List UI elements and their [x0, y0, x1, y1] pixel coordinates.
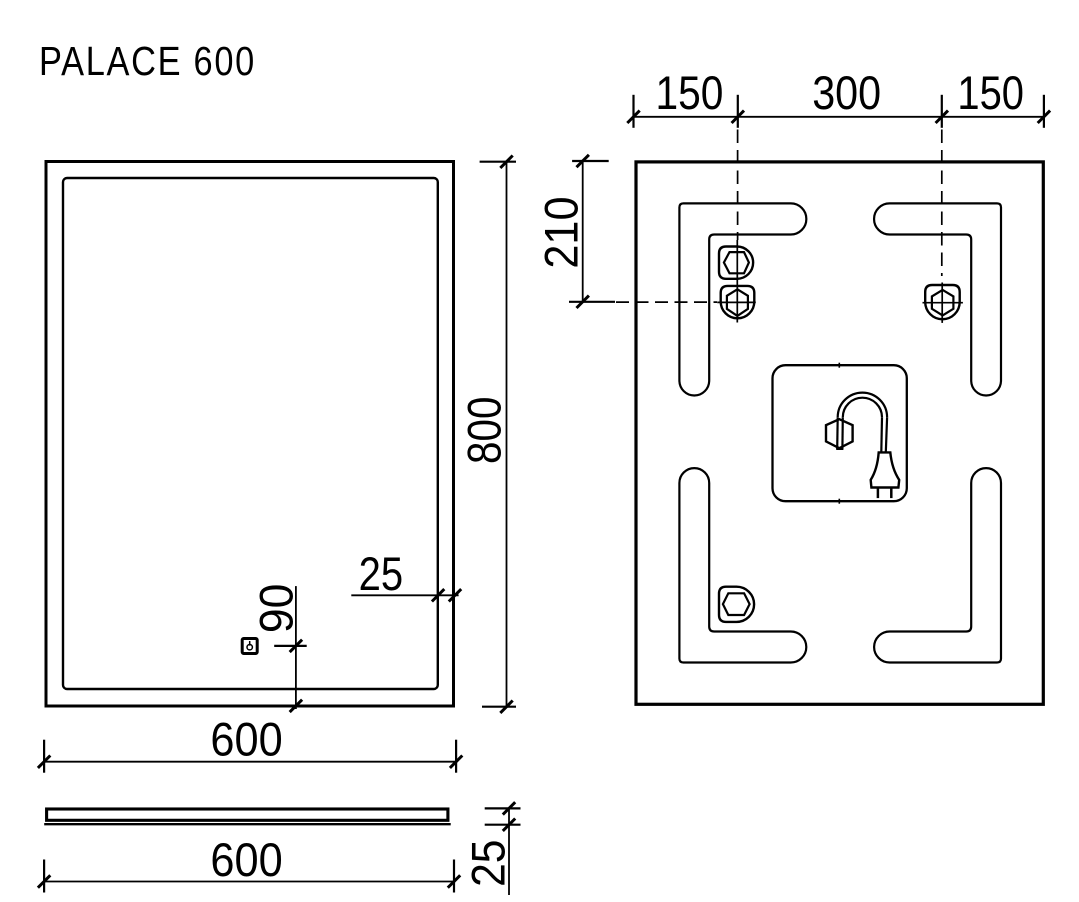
svg-text:150: 150: [656, 66, 724, 119]
svg-text:800: 800: [458, 397, 511, 465]
svg-text:600: 600: [210, 712, 282, 765]
svg-text:150: 150: [957, 66, 1024, 119]
svg-text:PALACE 600: PALACE 600: [39, 38, 256, 84]
svg-text:210: 210: [535, 197, 588, 269]
svg-text:300: 300: [812, 66, 881, 119]
svg-text:25: 25: [461, 840, 514, 887]
svg-text:600: 600: [210, 833, 282, 886]
svg-text:25: 25: [359, 547, 404, 600]
svg-text:90: 90: [249, 584, 302, 633]
